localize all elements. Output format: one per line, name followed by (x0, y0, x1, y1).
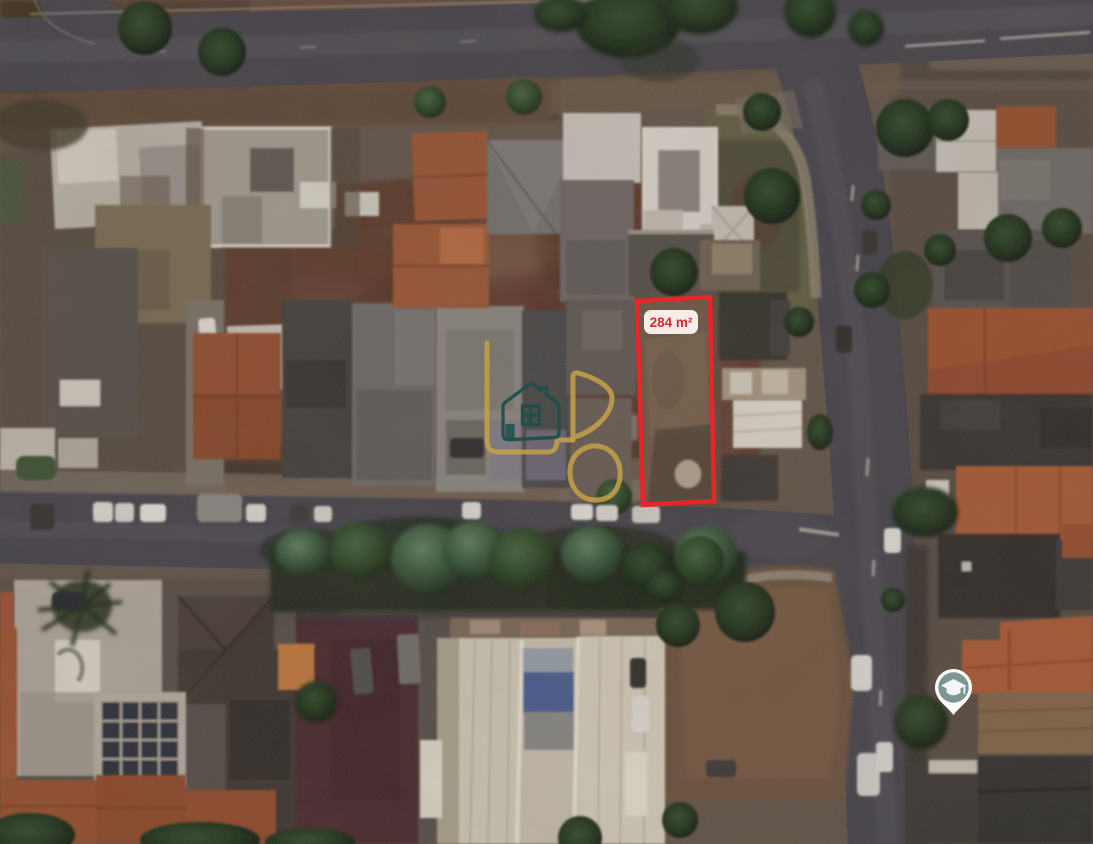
svg-text:284 m²: 284 m² (650, 315, 693, 330)
